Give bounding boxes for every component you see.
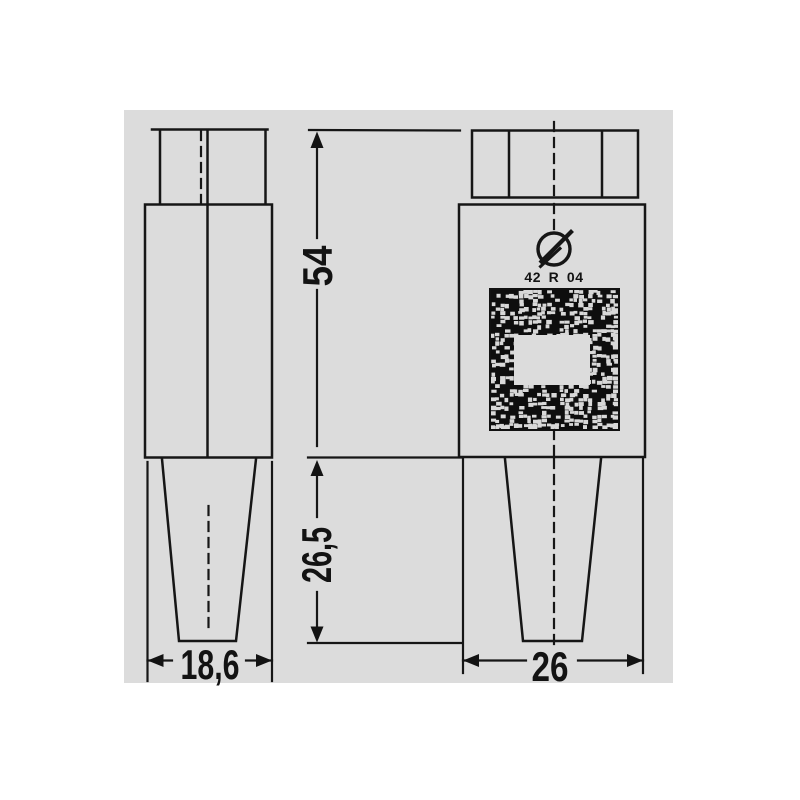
svg-text:54: 54 — [294, 245, 341, 287]
svg-text:26,5: 26,5 — [293, 527, 340, 583]
svg-text:18,6: 18,6 — [181, 641, 240, 688]
svg-text:42 R 04: 42 R 04 — [524, 269, 583, 285]
svg-text:26: 26 — [532, 643, 569, 690]
